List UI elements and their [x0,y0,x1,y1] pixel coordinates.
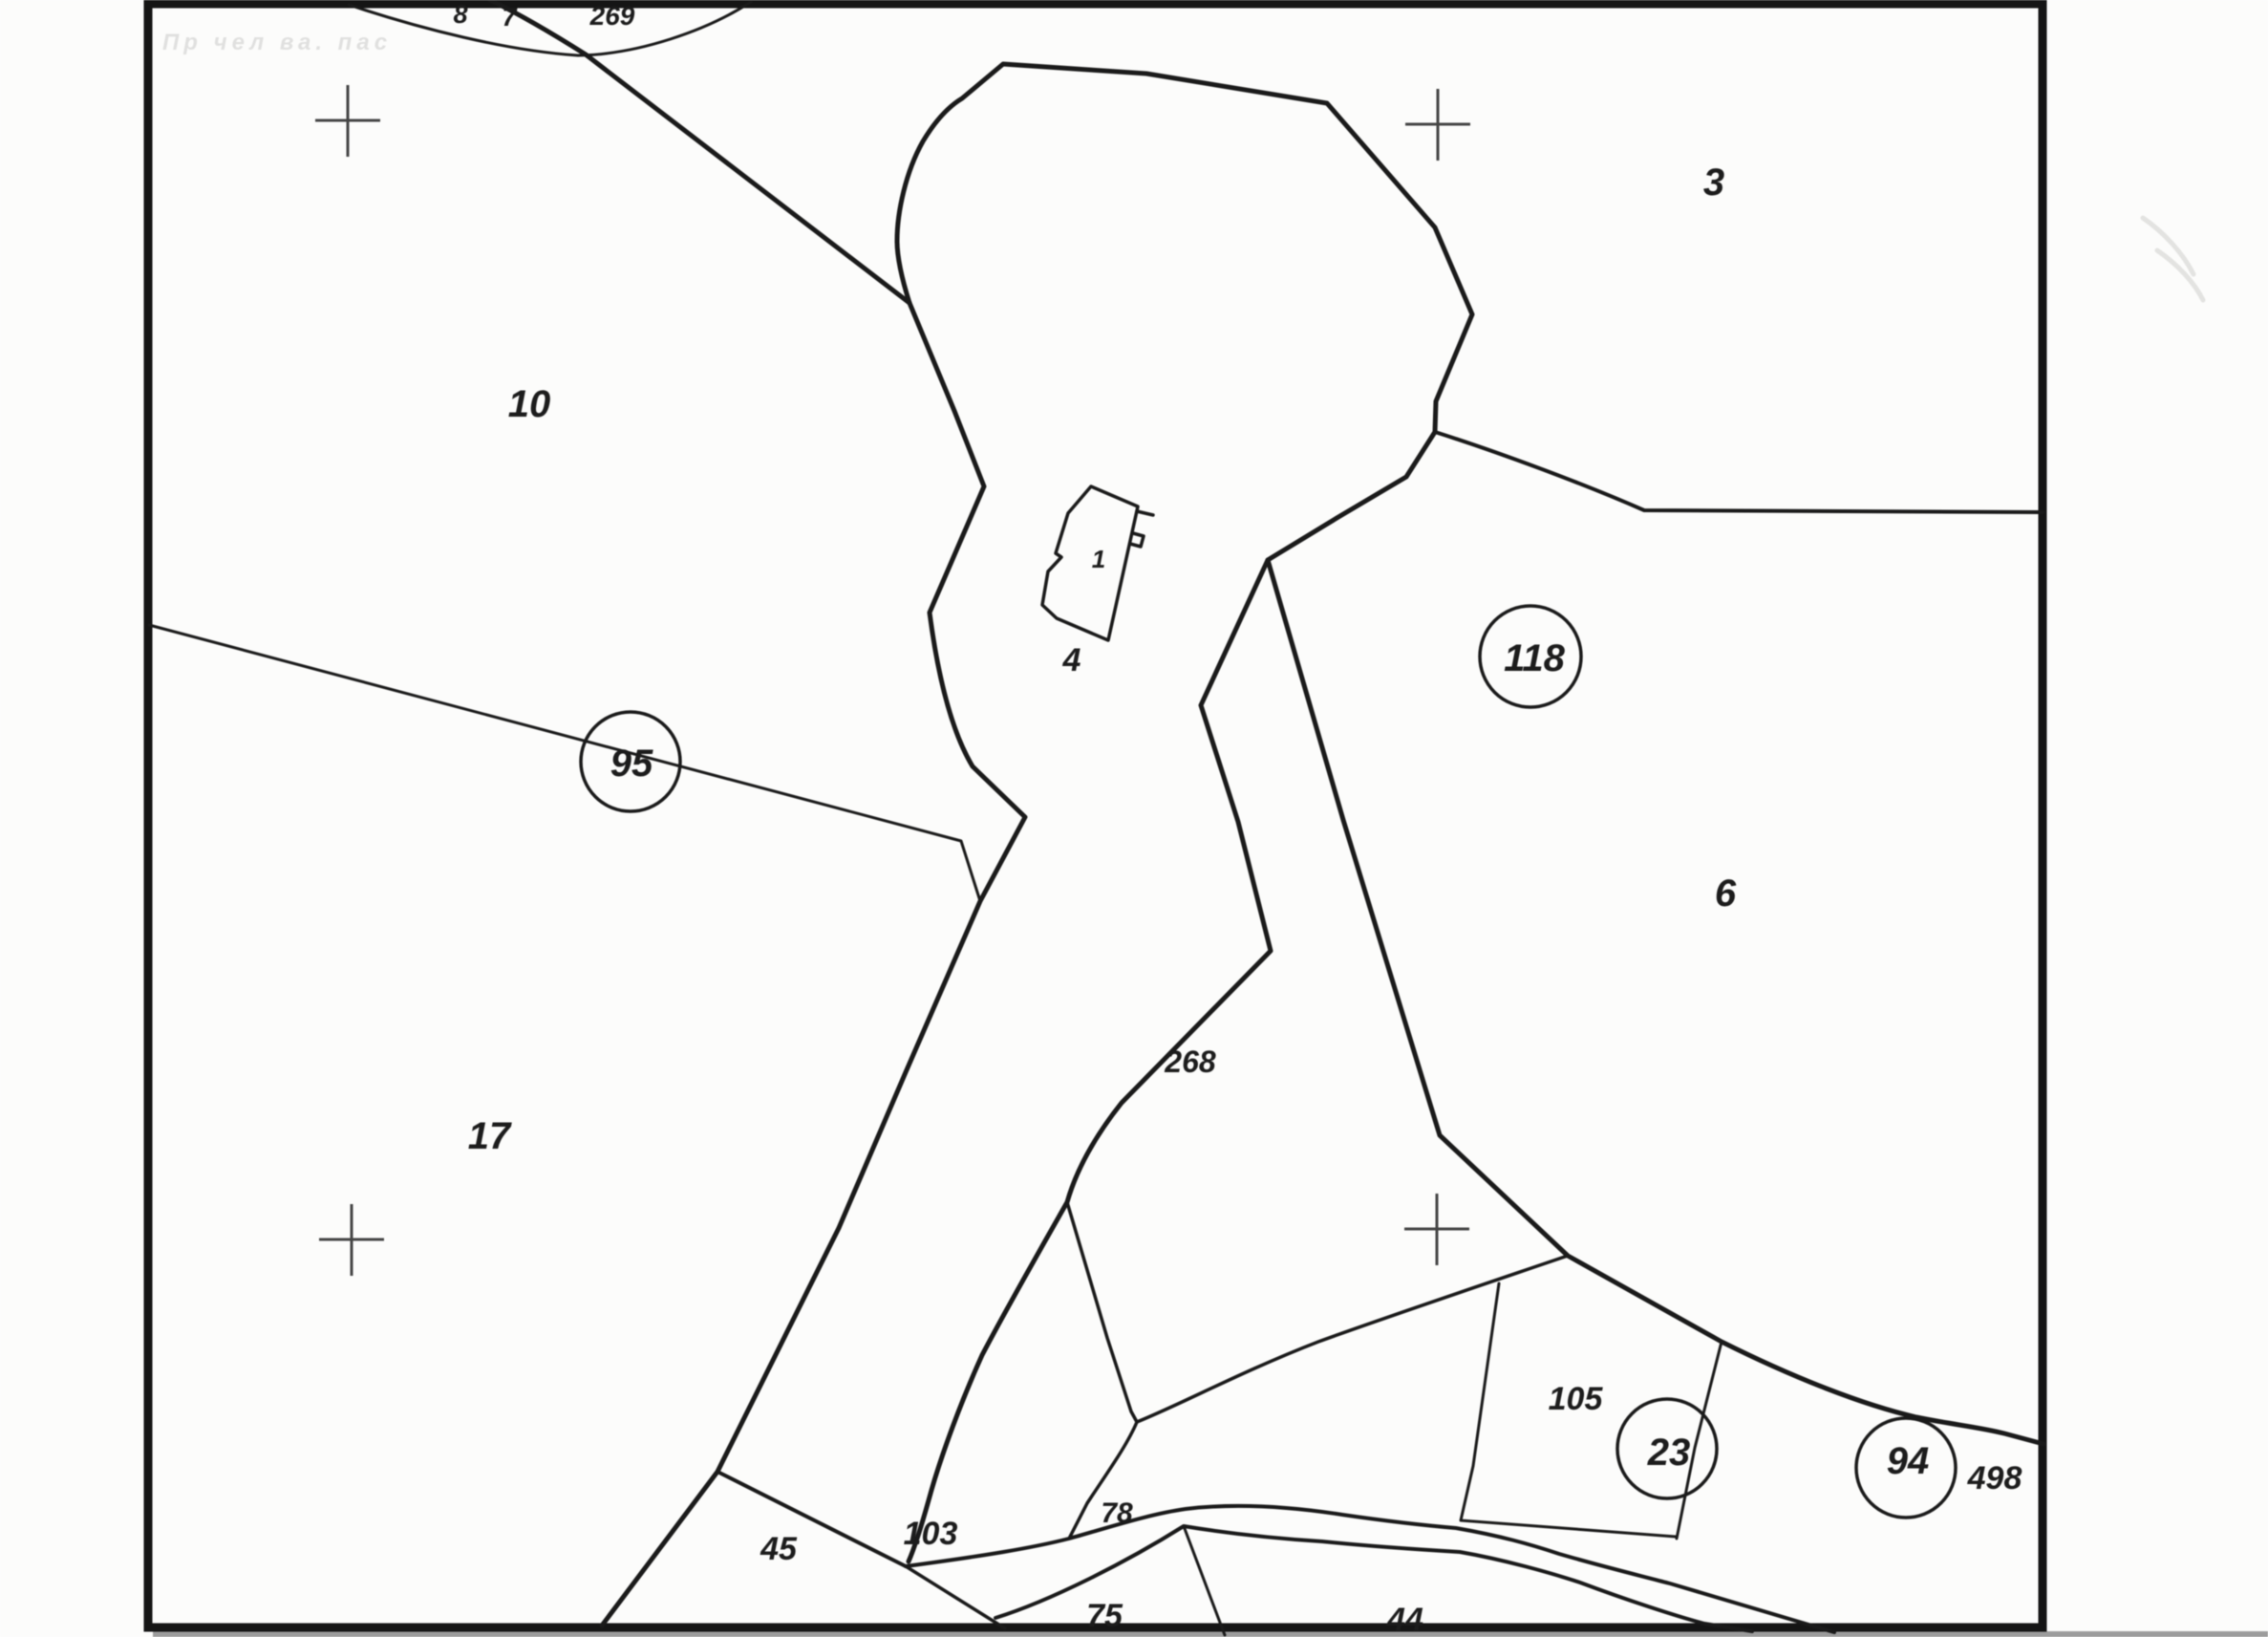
svg-text:6: 6 [1715,872,1737,915]
svg-text:498: 498 [1967,1460,2022,1497]
svg-text:8: 8 [453,0,467,29]
svg-text:3: 3 [1703,162,1724,204]
svg-text:94: 94 [1887,1440,1930,1482]
svg-text:105: 105 [1549,1381,1604,1417]
svg-text:17: 17 [468,1115,512,1157]
svg-text:10: 10 [508,383,551,425]
svg-text:269: 269 [589,1,635,31]
svg-text:4: 4 [1062,642,1081,678]
svg-text:95: 95 [610,743,653,785]
svg-text:103: 103 [904,1516,958,1552]
svg-text:1: 1 [1092,545,1105,573]
svg-text:268: 268 [1164,1045,1216,1079]
svg-text:44: 44 [1386,1602,1423,1637]
svg-text:118: 118 [1504,637,1566,679]
svg-text:7: 7 [502,3,518,32]
svg-text:75: 75 [1086,1598,1123,1634]
svg-text:45: 45 [760,1531,798,1567]
svg-text:78: 78 [1101,1497,1133,1529]
svg-text:23: 23 [1647,1432,1691,1474]
svg-text:Пр чел ва. пас: Пр чел ва. пас [162,30,392,55]
